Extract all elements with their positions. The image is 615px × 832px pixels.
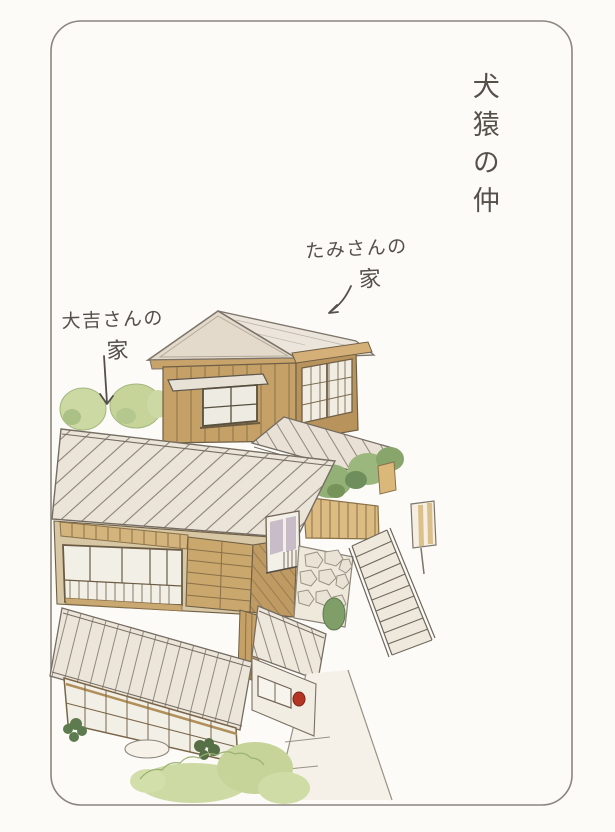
label-daikichi-line2: 家 <box>106 331 166 365</box>
entrance-bush <box>323 598 345 630</box>
bush <box>258 772 310 804</box>
red-bucket <box>293 692 305 706</box>
label-tami-house: たみさんの 家 <box>305 231 411 296</box>
tami-house <box>148 311 374 443</box>
label-daikichi-house: 大吉さんの 家 <box>61 303 166 367</box>
watercolor-houses-illustration <box>0 0 615 832</box>
stepping-stone <box>125 740 169 758</box>
illustration-page: 犬猿の仲 たみさんの 家 大吉さんの 家 <box>0 0 615 832</box>
label-tami-line2: 家 <box>358 259 410 294</box>
page-title: 犬猿の仲 <box>468 72 498 224</box>
label-tami-line1: たみさんの <box>305 231 409 263</box>
label-daikichi-line1: 大吉さんの <box>61 303 164 334</box>
lamp-post <box>411 501 436 574</box>
bay-window <box>266 511 300 573</box>
garden-bushes-left <box>60 384 169 430</box>
